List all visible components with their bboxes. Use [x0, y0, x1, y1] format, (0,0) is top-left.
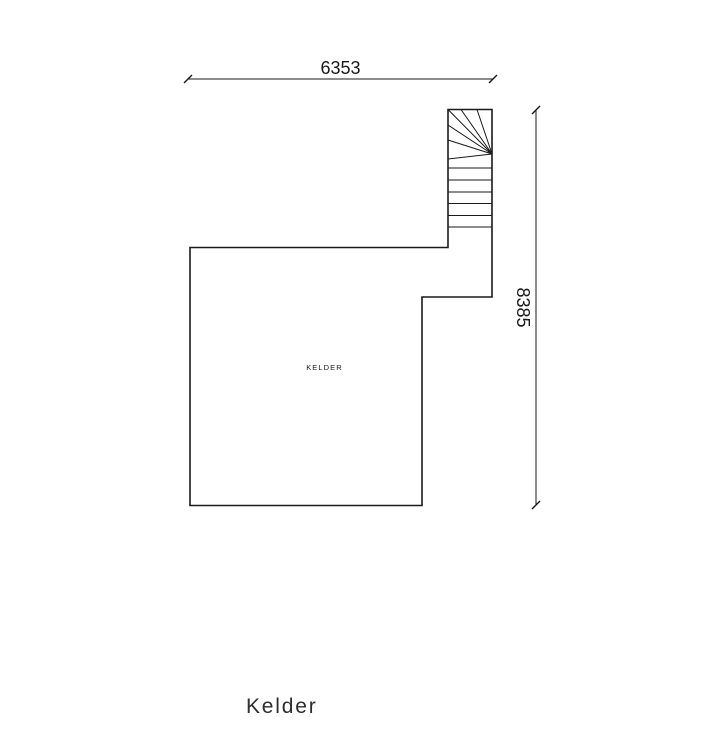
dimension-height: 8385: [513, 106, 540, 509]
drawing-title: Kelder: [246, 695, 318, 718]
floorplan-drawing: 6353 8385 KELDER Kelder: [0, 0, 708, 732]
room-label: KELDER: [306, 363, 343, 372]
staircase: [448, 110, 492, 228]
dimension-height-value: 8385: [513, 287, 533, 327]
stair-treads: [448, 168, 492, 227]
stair-winders: [448, 110, 492, 160]
dimension-width: 6353: [184, 58, 497, 83]
dimension-width-value: 6353: [320, 58, 360, 78]
floorplan-sheet: 6353 8385 KELDER Kelder: [0, 0, 708, 732]
room-outline: [190, 110, 492, 506]
